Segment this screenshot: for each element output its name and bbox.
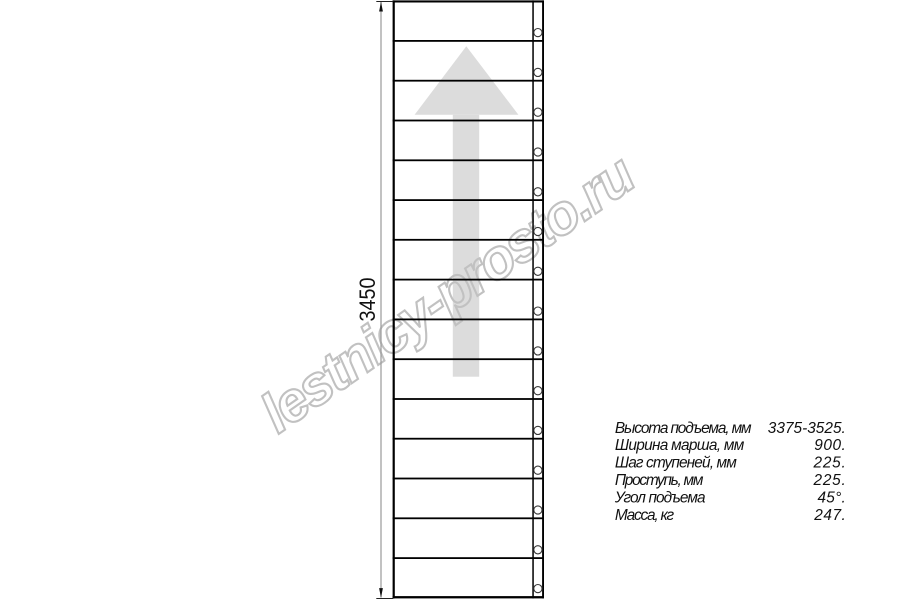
svg-text:225.: 225.: [813, 472, 846, 489]
svg-text:3375-3525.: 3375-3525.: [768, 420, 846, 437]
svg-text:Высота подъема, мм: Высота подъема, мм: [615, 420, 752, 437]
svg-text:225.: 225.: [813, 455, 846, 472]
svg-text:Масса, кг: Масса, кг: [615, 507, 675, 524]
svg-text:Угол подъема: Угол подъема: [614, 489, 706, 506]
svg-text:900.: 900.: [814, 437, 846, 454]
svg-text:45°.: 45°.: [818, 489, 846, 506]
svg-text:Шаг ступеней, мм: Шаг ступеней, мм: [615, 455, 737, 472]
svg-text:247.: 247.: [813, 507, 846, 524]
svg-text:3450: 3450: [355, 278, 380, 322]
svg-text:Ширина марша, мм: Ширина марша, мм: [615, 437, 745, 454]
svg-text:Проступь, мм: Проступь, мм: [615, 472, 704, 489]
